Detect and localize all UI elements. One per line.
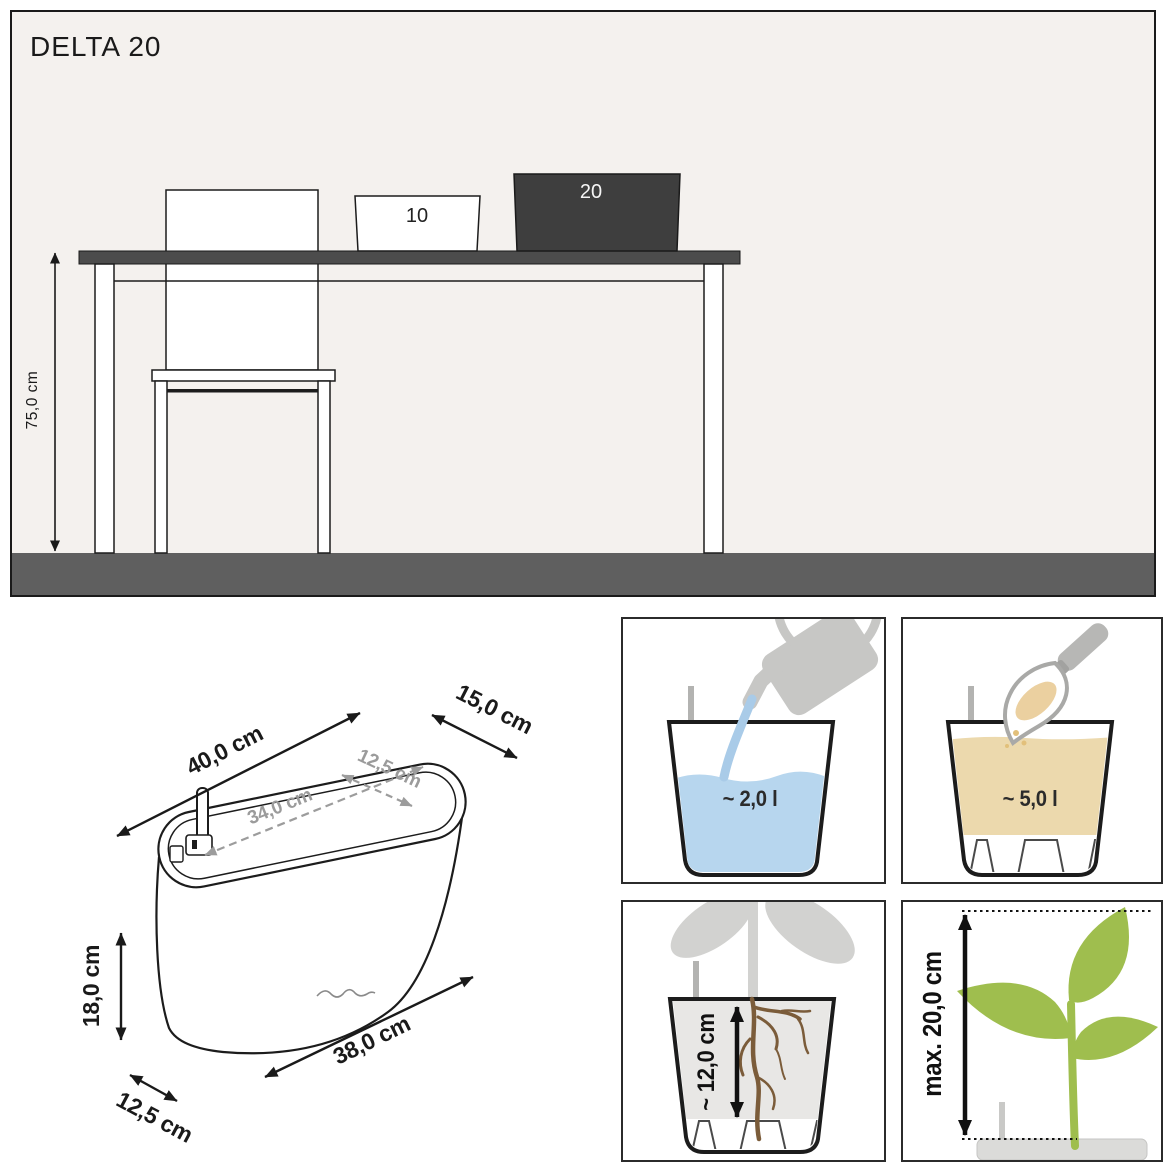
planter-10-label: 10 <box>406 205 428 227</box>
plant-leaf <box>957 983 1071 1039</box>
water-panel-svg: ~ 2,0 l <box>623 619 884 882</box>
separator-notch <box>1018 840 1064 875</box>
plant-leaf <box>1072 1017 1158 1060</box>
plant-icon <box>957 907 1158 1146</box>
indicator-stick-icon <box>688 686 694 722</box>
planter-20-label: 20 <box>580 181 602 203</box>
chair-seat <box>152 370 335 381</box>
table-leg-left <box>95 264 114 553</box>
tabletop <box>79 251 740 264</box>
chair-backrest <box>166 190 318 370</box>
table-height-label: 75,0 cm <box>24 371 41 430</box>
soil-crumb <box>1005 744 1009 748</box>
table-leg-right <box>704 264 723 553</box>
separator-notch <box>740 1121 786 1152</box>
substrate-fill <box>945 737 1115 835</box>
plant-leaf <box>1068 907 1129 1003</box>
indicator-stick-icon <box>693 961 699 999</box>
plant-panel-svg: max. 20,0 cm <box>903 902 1161 1160</box>
outer-width-label: 15,0 cm <box>452 679 537 740</box>
soil-crumb <box>1022 741 1027 746</box>
floor <box>12 553 1154 595</box>
panel-substrate-volume: ~ 5,0 l <box>901 617 1163 884</box>
chair-leg-right <box>318 381 330 553</box>
substrate-panel-svg: ~ 5,0 l <box>903 619 1161 882</box>
panel-water-reservoir: ~ 2,0 l <box>621 617 886 884</box>
plant-stem <box>1071 1004 1075 1146</box>
outer-length-label: 40,0 cm <box>182 720 267 781</box>
scene-drawing: DELTA 20 10 20 75,0 cm <box>12 12 1154 595</box>
indicator-stick-icon <box>968 686 974 722</box>
plant-silhouette-icon <box>660 902 866 1000</box>
root-panel-svg: ~ 12,0 cm <box>623 902 884 1160</box>
soil-crumb <box>1013 730 1019 736</box>
isometric-drawing: 34,0 cm 12,5 cm 40,0 cm 15,0 cm 18,0 cm … <box>55 630 605 1163</box>
chair-crossbar <box>167 389 318 393</box>
substrate-volume-label: ~ 5,0 l <box>1003 787 1058 811</box>
chair-leg-left <box>155 381 167 553</box>
plant-height-label: max. 20,0 cm <box>918 951 947 1097</box>
root-depth-label: ~ 12,0 cm <box>692 1013 719 1111</box>
height-label: 18,0 cm <box>78 945 104 1027</box>
indicator-slot <box>192 840 197 849</box>
filling-shaft <box>170 846 183 862</box>
panel-root-depth: ~ 12,0 cm <box>621 900 886 1162</box>
watering-can-icon <box>750 619 883 720</box>
water-volume-label: ~ 2,0 l <box>723 787 778 811</box>
planter-iso-svg: 34,0 cm 12,5 cm 40,0 cm 15,0 cm 18,0 cm … <box>55 630 605 1163</box>
pot-rim <box>977 1139 1147 1160</box>
page-title: DELTA 20 <box>30 31 161 62</box>
base-width-label: 12,5 cm <box>112 1086 197 1148</box>
panel-plant-height: max. 20,0 cm <box>901 900 1163 1162</box>
indicator-stick-icon <box>999 1102 1005 1139</box>
silhouette-leaf <box>754 902 867 977</box>
indicator-base <box>186 835 212 855</box>
scene-box: DELTA 20 10 20 75,0 cm <box>10 10 1156 597</box>
